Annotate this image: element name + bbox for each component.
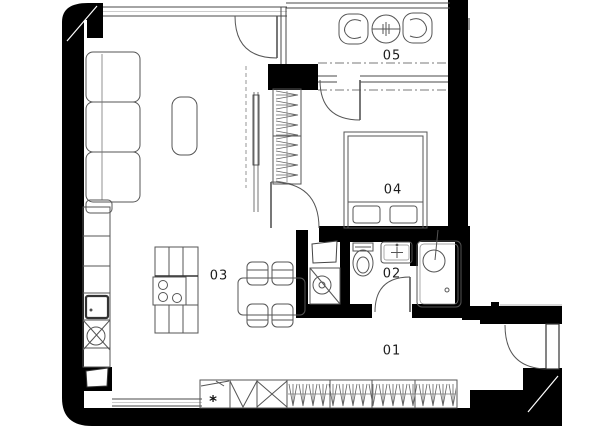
room-label-02: 02 bbox=[383, 267, 402, 282]
closet-star-symbol: * bbox=[209, 392, 217, 410]
living-furniture bbox=[86, 52, 305, 327]
room-label-01: 01 bbox=[383, 344, 402, 359]
pillow bbox=[353, 206, 380, 223]
room-label-03: 03 bbox=[210, 269, 229, 284]
kitchen-counter bbox=[83, 207, 110, 367]
kitchen-island bbox=[153, 247, 198, 333]
balcony-table bbox=[372, 15, 400, 43]
wardrobe-bedroom bbox=[273, 89, 301, 184]
hall-wardrobe bbox=[200, 380, 457, 408]
washbasin bbox=[381, 242, 412, 263]
floor-plan-drawing bbox=[0, 0, 600, 426]
kitchen-sink bbox=[86, 296, 108, 318]
bed bbox=[344, 132, 427, 228]
shoe-cabinet bbox=[86, 368, 108, 387]
dining-chair bbox=[247, 262, 268, 285]
exterior-walls bbox=[62, 0, 562, 426]
dining-chair bbox=[272, 262, 293, 285]
dining-set bbox=[238, 262, 305, 327]
washing-machine bbox=[310, 268, 340, 304]
room-label-04: 04 bbox=[384, 183, 403, 198]
floor-plan: 01 02 03 04 05 * bbox=[0, 0, 600, 426]
kitchen bbox=[83, 207, 198, 367]
sliding-partition bbox=[246, 66, 259, 212]
toilet bbox=[353, 243, 373, 276]
windows bbox=[103, 3, 562, 406]
balcony-furniture bbox=[339, 13, 432, 44]
bedroom-furniture bbox=[273, 89, 427, 228]
pillow bbox=[390, 206, 417, 223]
room-label-05: 05 bbox=[383, 49, 402, 64]
coffee-table bbox=[172, 97, 197, 155]
balcony-chair-right bbox=[403, 13, 432, 43]
utility-cabinet bbox=[312, 241, 337, 263]
sofa bbox=[86, 52, 140, 213]
balcony-chair-left bbox=[339, 14, 368, 44]
sink-cross-cell bbox=[83, 320, 110, 350]
